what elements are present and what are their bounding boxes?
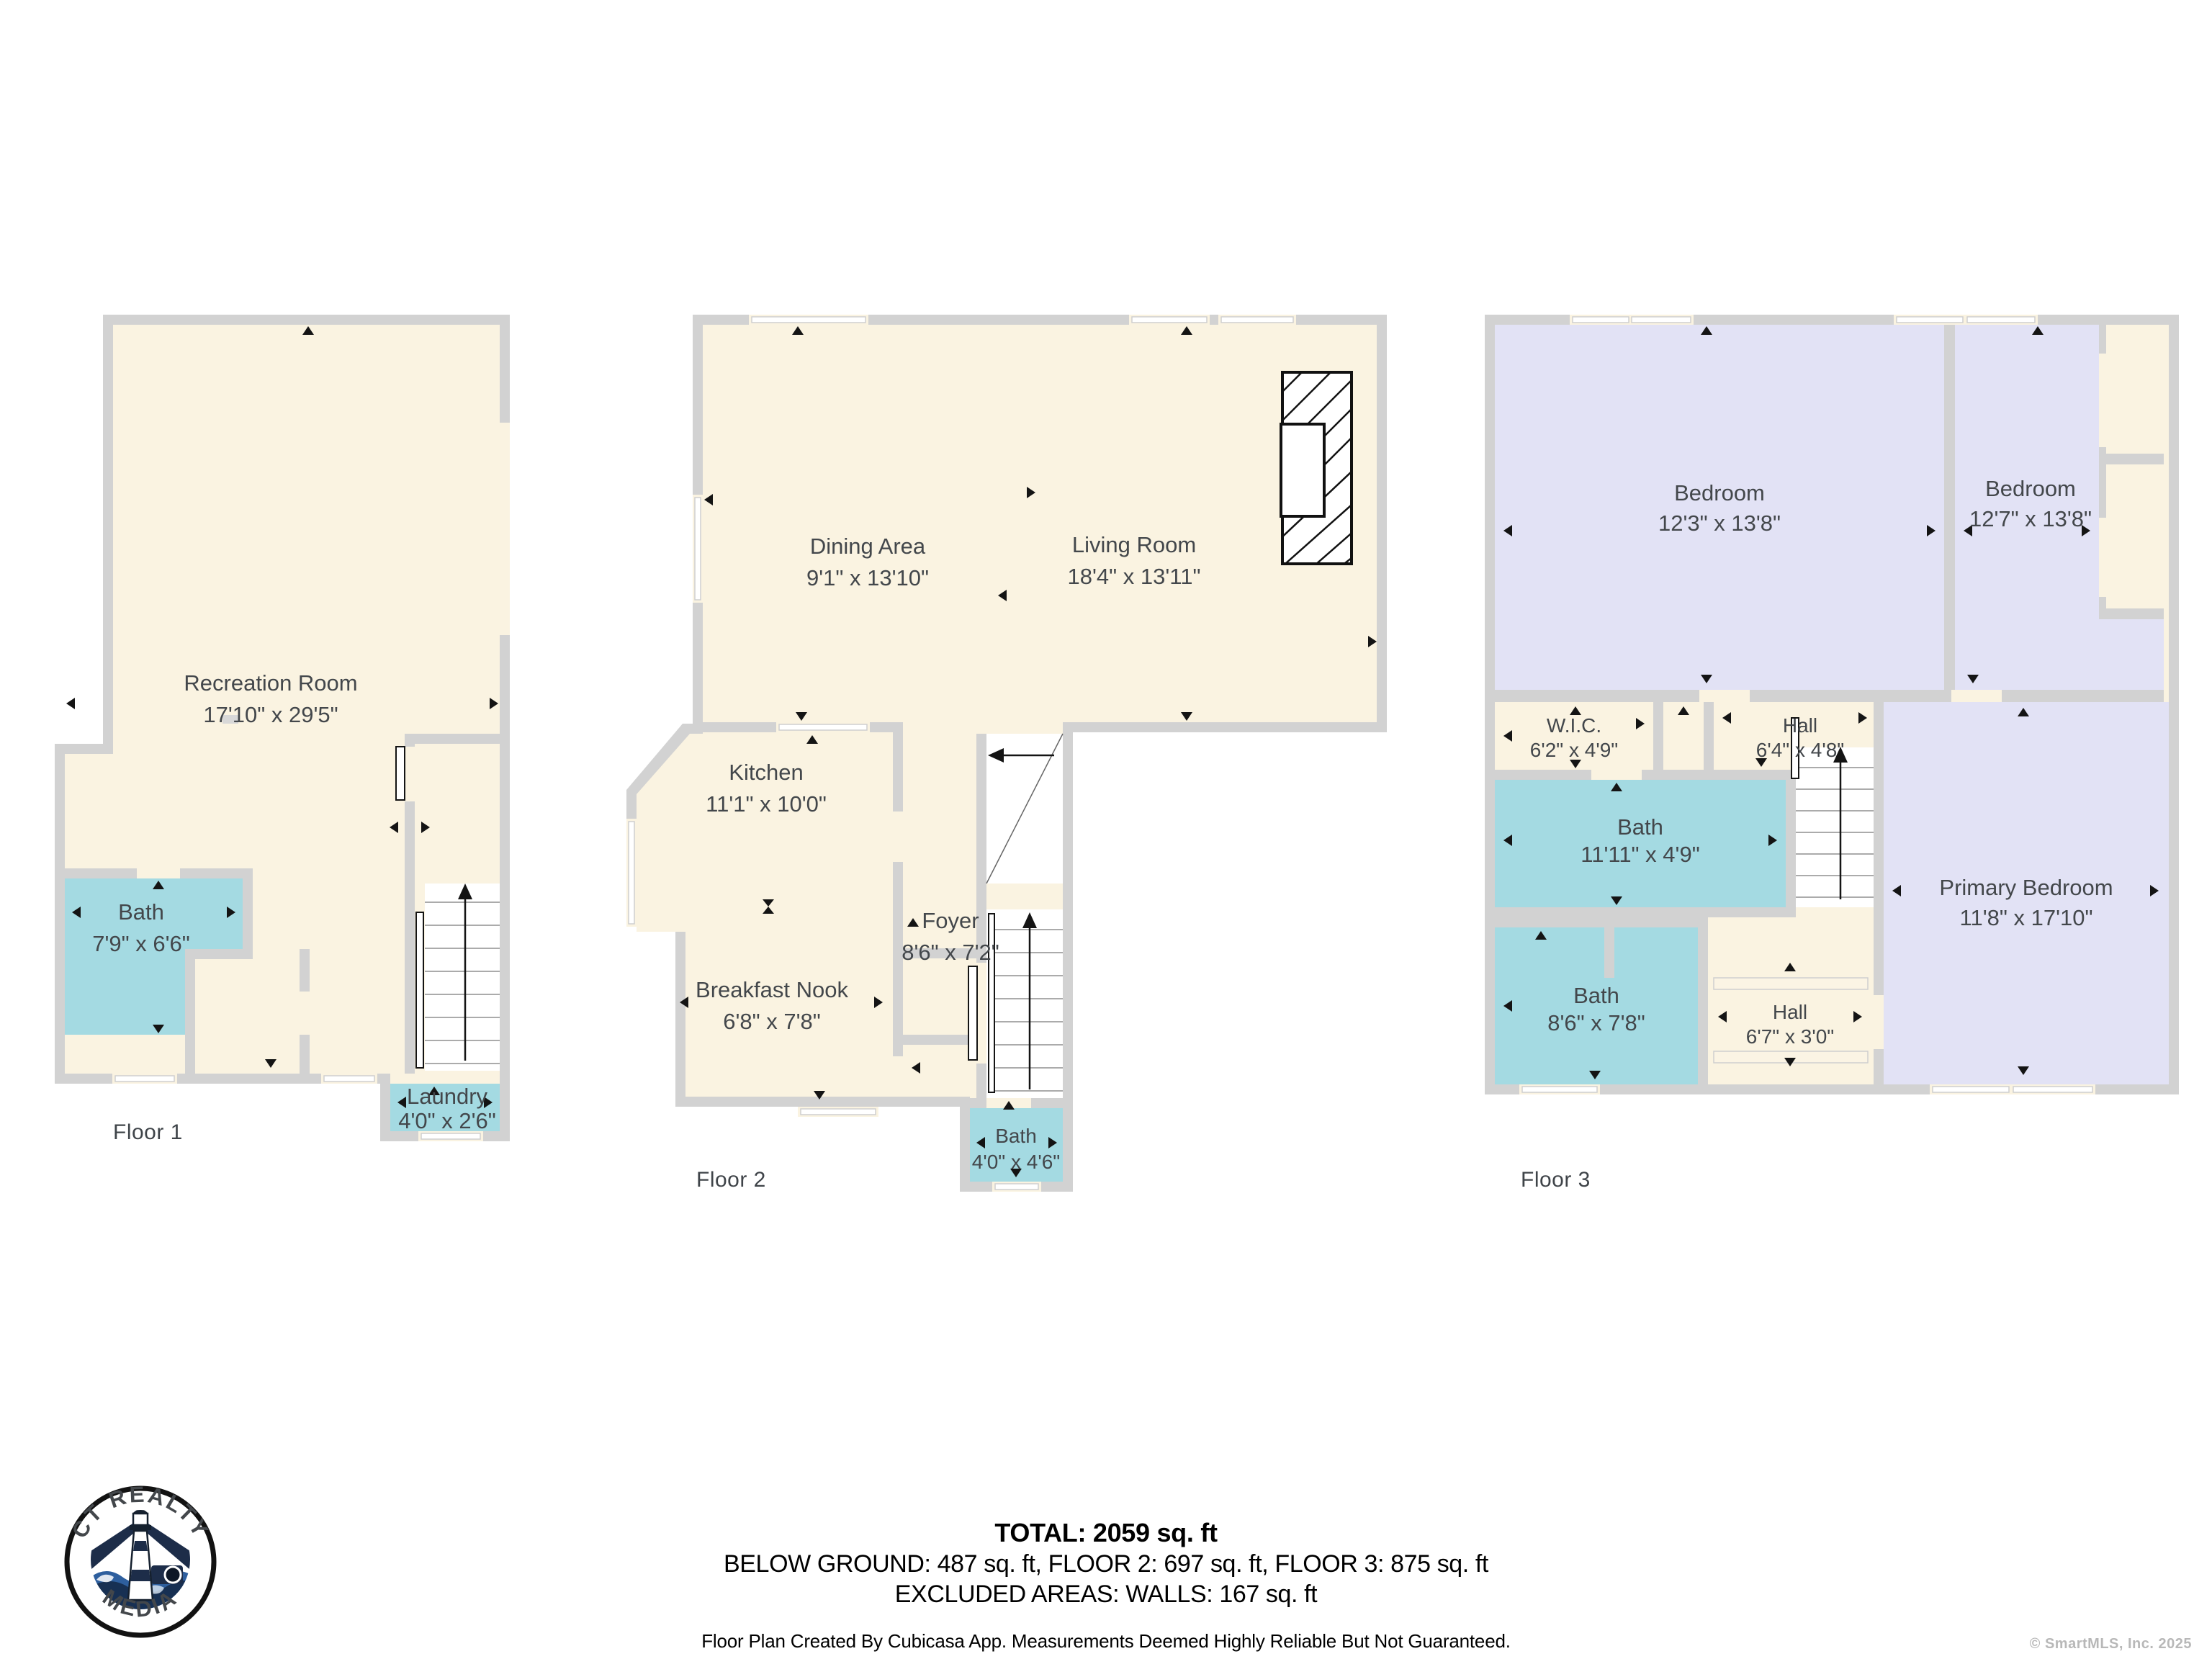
room-dims: 11'8" x 17'10" <box>1960 905 2093 930</box>
excluded-areas: EXCLUDED AREAS: WALLS: 167 sq. ft <box>0 1581 2212 1609</box>
floor2-plan: Dining Area 9'1" x 13'10" Living Room 18… <box>625 315 1388 1222</box>
floor1-stairs <box>416 884 500 1071</box>
room-dims: 6'7" x 3'0" <box>1746 1025 1834 1048</box>
room-dims: 11'11" x 4'9" <box>1581 842 1699 867</box>
floor3-plan: Bedroom 12'3" x 13'8" Bedroom 12'7" x 13… <box>1483 315 2189 1107</box>
room-dims: 6'8" x 7'8" <box>723 1009 821 1034</box>
room-dims: 4'0" x 4'6" <box>972 1151 1060 1173</box>
room-dims: 4'0" x 2'6" <box>398 1108 496 1133</box>
room-dims: 9'1" x 13'10" <box>806 565 929 590</box>
room-label: W.I.C. <box>1547 714 1601 737</box>
floorplan-page: Recreation Room 17'10" x 29'5" Bath 7'9"… <box>0 0 2212 1659</box>
floor3-bedroom2-ext <box>2099 619 2164 690</box>
room-label: Hall <box>1783 714 1817 737</box>
room-label: Kitchen <box>729 760 803 785</box>
room-label: Laundry <box>407 1084 488 1109</box>
floor2-title: Floor 2 <box>696 1168 766 1192</box>
area-summary: TOTAL: 2059 sq. ft BELOW GROUND: 487 sq.… <box>0 1518 2212 1653</box>
room-label: Bath <box>1573 983 1619 1008</box>
floor3-title: Floor 3 <box>1521 1168 1591 1192</box>
door-gap <box>1951 690 2002 702</box>
room-label: Living Room <box>1072 532 1196 557</box>
door-gap <box>1699 690 1750 702</box>
room-dims: 6'4" x 4'8" <box>1756 739 1844 761</box>
floor-breakdown: BELOW GROUND: 487 sq. ft, FLOOR 2: 697 s… <box>0 1550 2212 1578</box>
room-dims: 18'4" x 13'11" <box>1068 564 1201 589</box>
room-dims: 7'9" x 6'6" <box>92 931 190 956</box>
room-label: Bedroom <box>1985 476 2076 501</box>
room-label: Foyer <box>922 908 979 933</box>
bedroom-divider-wall <box>1944 325 1955 690</box>
laundry-door-gap <box>409 1074 459 1084</box>
floor3-bedroom1 <box>1495 325 1944 690</box>
room-dims: 8'6" x 7'2" <box>902 940 999 965</box>
floor1-title: Floor 1 <box>113 1120 183 1145</box>
room-label: Bath <box>995 1125 1037 1147</box>
wall <box>1495 907 1786 917</box>
room-label: Recreation Room <box>184 670 357 696</box>
room-label: Bath <box>1617 814 1663 840</box>
disclaimer: Floor Plan Created By Cubicasa App. Meas… <box>0 1630 2212 1653</box>
room-label: Bedroom <box>1674 480 1765 505</box>
room-dims: 12'7" x 13'8" <box>1969 506 2092 531</box>
room-dims: 11'1" x 10'0" <box>706 791 827 817</box>
room-label: Breakfast Nook <box>696 977 848 1002</box>
floor1-plan: Recreation Room 17'10" x 29'5" Bath 7'9"… <box>55 315 516 1150</box>
door-leaf <box>968 966 977 1060</box>
mid-wall <box>1495 690 2164 702</box>
room-label: Dining Area <box>810 534 926 559</box>
total-area: TOTAL: 2059 sq. ft <box>0 1518 2212 1548</box>
floor3-closets <box>2099 325 2164 619</box>
room-dims: 17'10" x 29'5" <box>203 702 338 727</box>
room-dims: 6'2" x 4'9" <box>1530 739 1618 761</box>
room-label: Hall <box>1773 1001 1807 1023</box>
room-dims: 12'3" x 13'8" <box>1658 511 1781 536</box>
wall-niche <box>490 423 510 635</box>
room-dims: 8'6" x 7'8" <box>1547 1010 1645 1035</box>
door-leaf <box>396 747 405 800</box>
room-label: Primary Bedroom <box>1939 875 2113 900</box>
copyright: © SmartMLS, Inc. 2025 <box>2030 1636 2192 1653</box>
room-label: Bath <box>118 899 164 925</box>
